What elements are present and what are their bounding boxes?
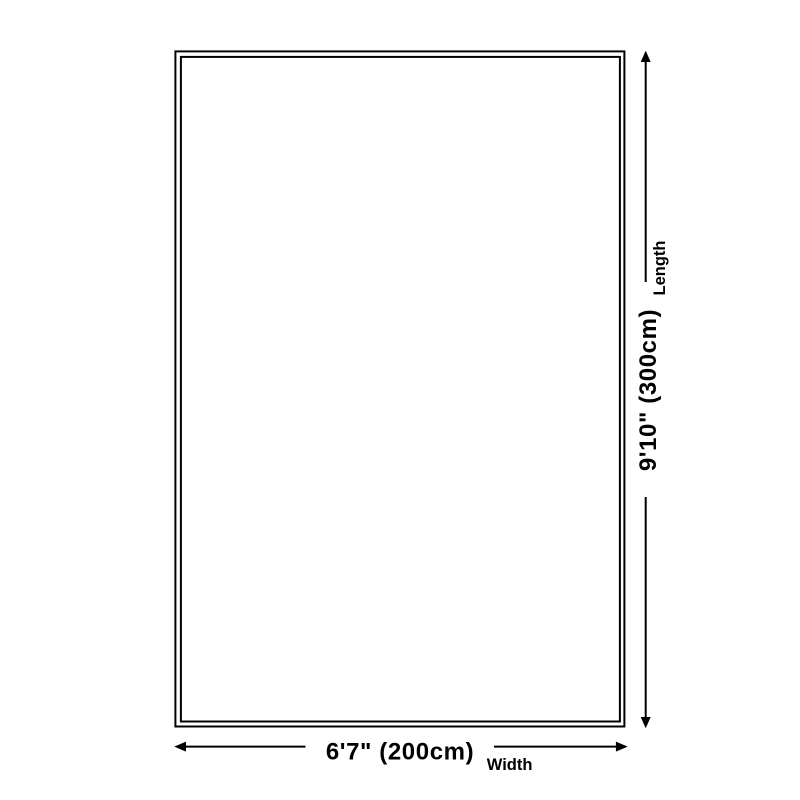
svg-text:Width: Width [487, 756, 533, 774]
svg-text:9'10" (300cm): 9'10" (300cm) [635, 309, 662, 471]
svg-text:6'7" (200cm): 6'7" (200cm) [326, 739, 474, 766]
svg-text:Length: Length [651, 241, 669, 296]
